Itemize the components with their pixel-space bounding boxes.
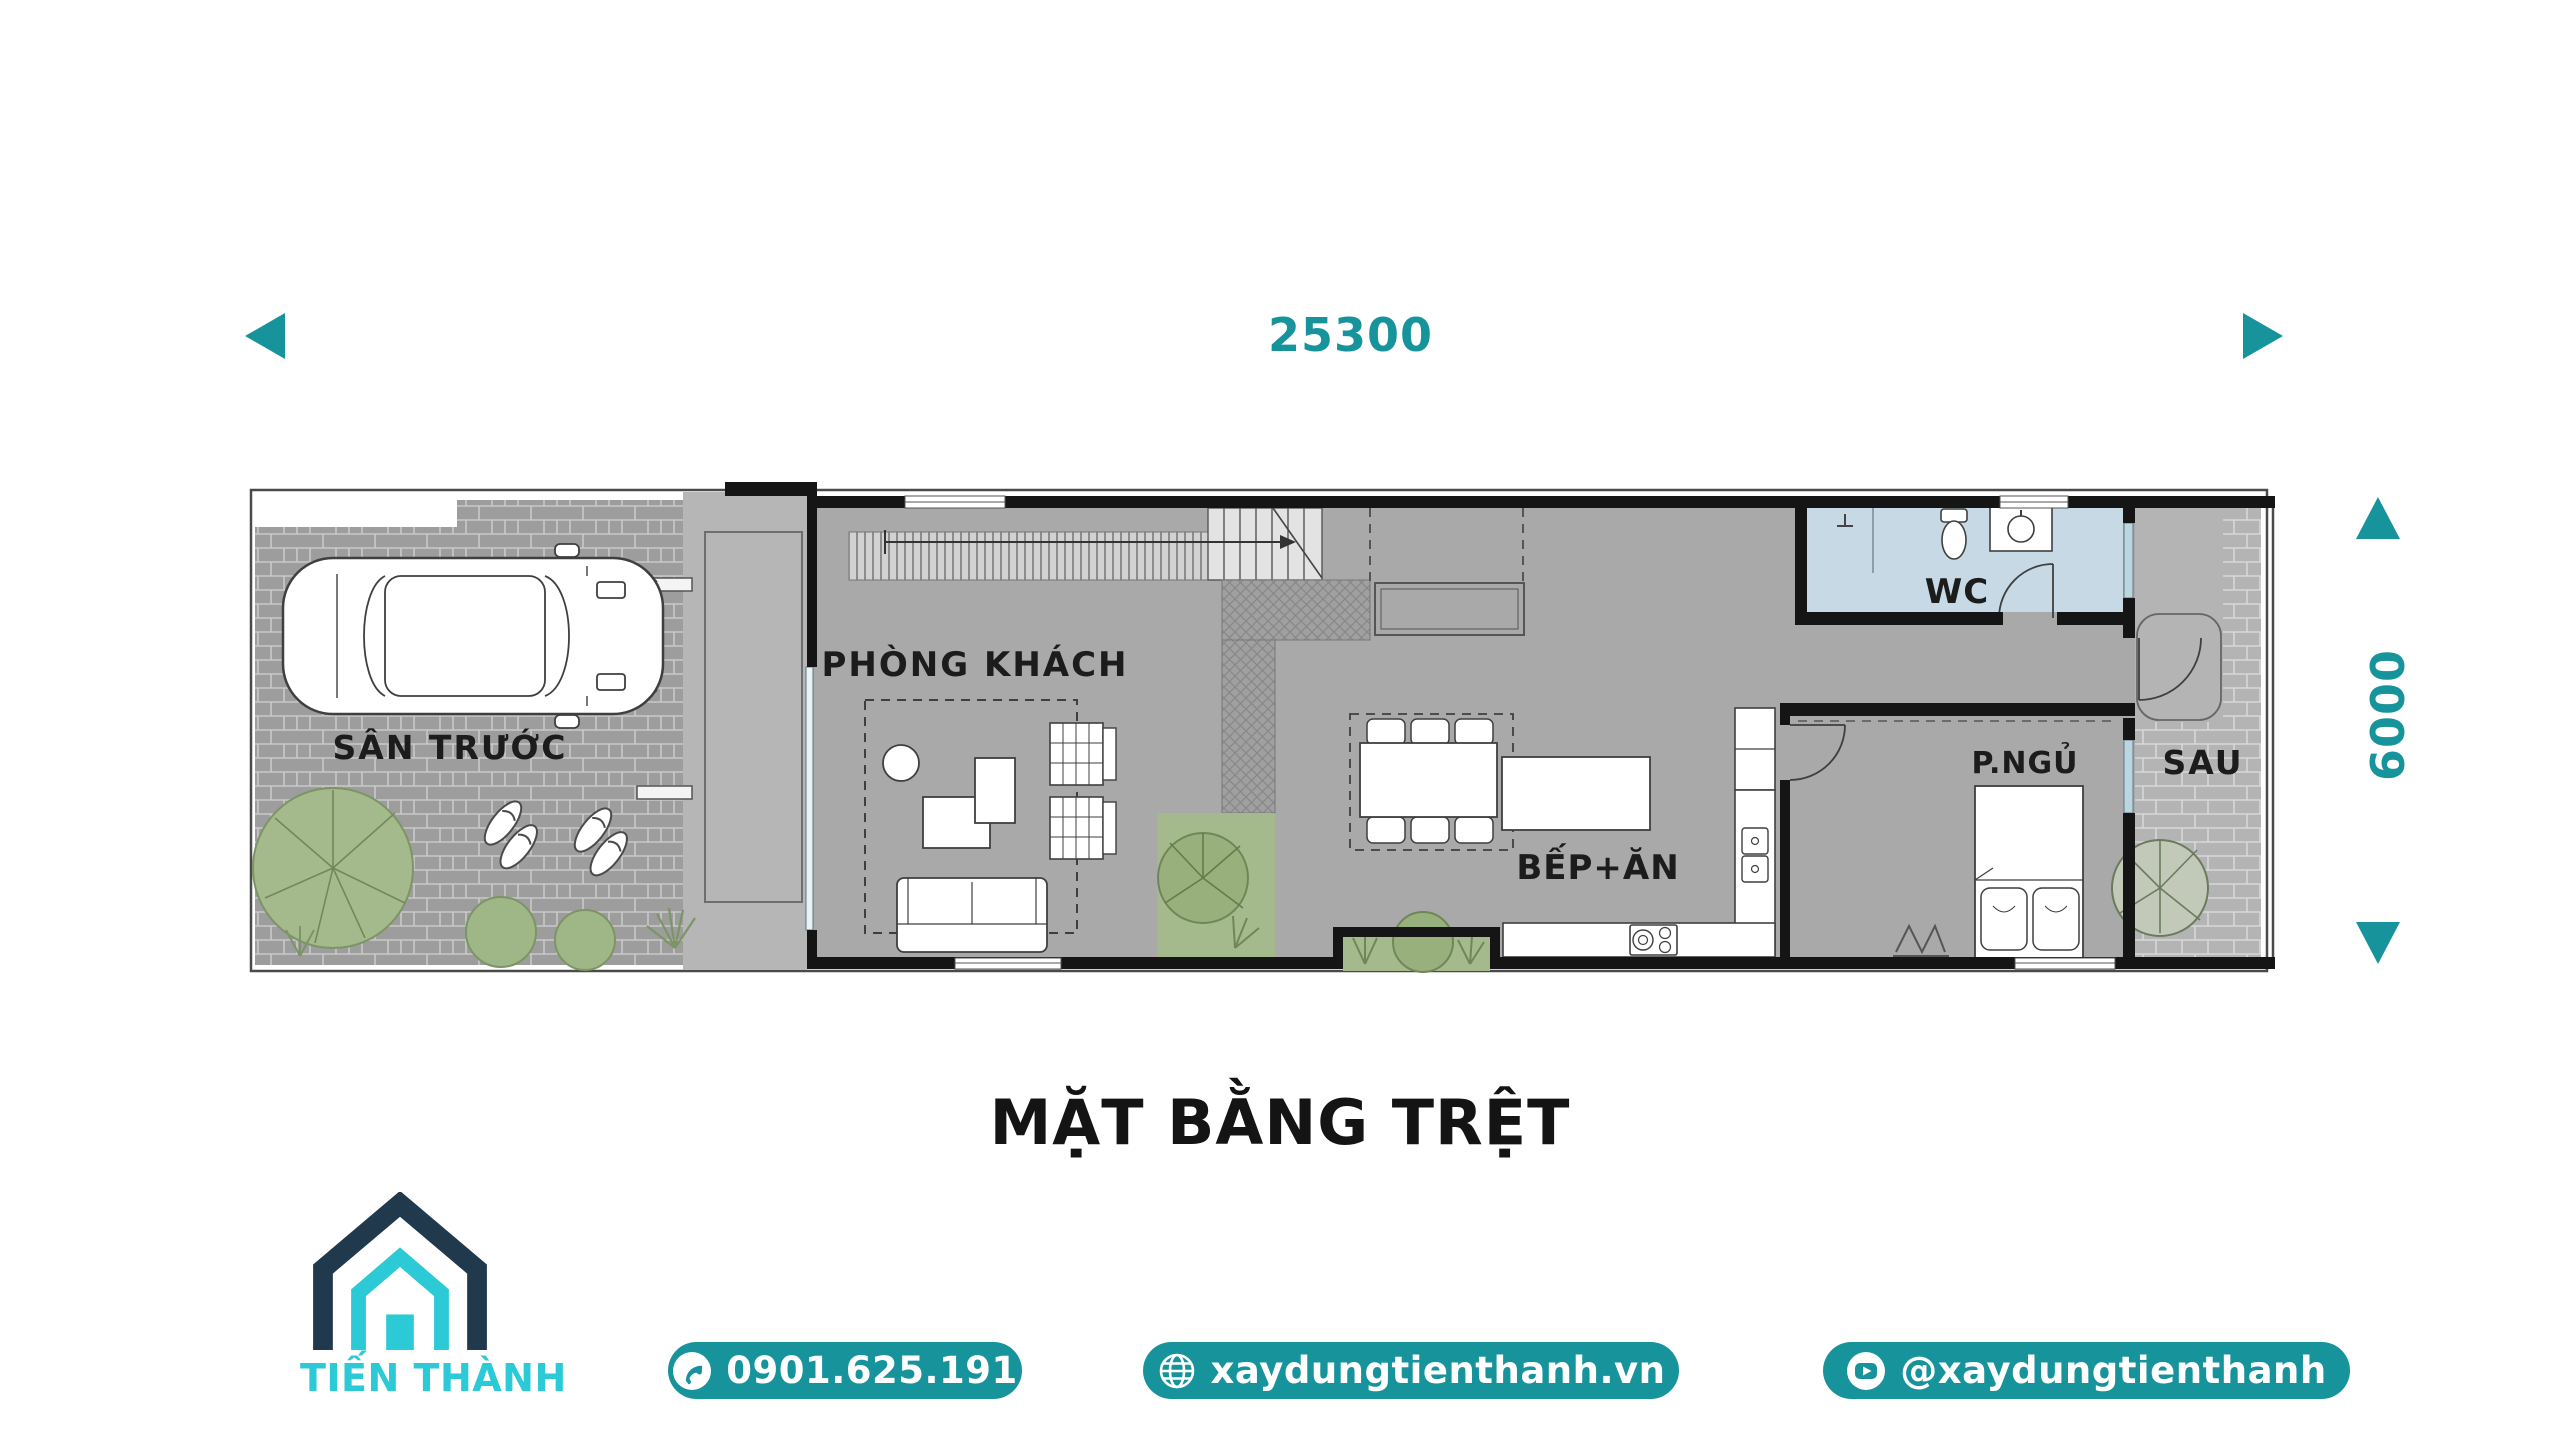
pillow — [1981, 888, 2027, 950]
bed — [1975, 786, 2083, 958]
courtyard-garden — [1157, 813, 1275, 960]
phone-number: 0901.625.191 — [726, 1349, 1018, 1392]
house-logo-icon — [300, 1192, 500, 1350]
gate-step — [637, 786, 692, 799]
label-back-yard: SAU — [2162, 743, 2243, 782]
social-button[interactable]: @xaydungtienthanh — [1823, 1342, 2350, 1399]
label-bedroom: P.NGỦ — [1972, 741, 2079, 781]
youtube-icon — [1846, 1351, 1886, 1391]
car-illustration — [283, 544, 663, 728]
globe-icon — [1157, 1351, 1197, 1391]
label-living-room: PHÒNG KHÁCH — [822, 644, 1129, 685]
label-kitchen-dining: BẾP+ĂN — [1516, 843, 1679, 888]
height-dimension: 6000 — [2361, 649, 2415, 781]
width-dimension: 25300 — [1268, 308, 1433, 362]
pillow — [2033, 888, 2079, 950]
driveway — [683, 492, 807, 970]
phone-icon — [672, 1351, 712, 1391]
wc-window — [2124, 523, 2133, 598]
phone-button[interactable]: 0901.625.191 — [668, 1342, 1022, 1399]
triangle-right-icon — [2243, 313, 2283, 359]
triangle-up-icon — [2356, 497, 2400, 539]
sofa — [897, 878, 1047, 952]
toilet — [1941, 509, 1967, 559]
brand-name: TIẾN THÀNH — [300, 1356, 500, 1400]
armchair — [1050, 723, 1116, 785]
triangle-down-icon — [2356, 922, 2400, 964]
page-title: MẶT BẰNG TRỆT — [0, 1086, 2560, 1159]
kitchen-island — [1502, 757, 1650, 830]
triangle-left-icon — [245, 313, 285, 359]
round-table — [883, 745, 919, 781]
entrance-glass-door — [806, 667, 813, 930]
label-front-yard: SÂN TRƯỚC — [333, 727, 568, 767]
side-table — [975, 758, 1015, 823]
dining-table — [1360, 743, 1497, 817]
bedroom-window — [2124, 740, 2133, 813]
floor-plan-svg: SÂN TRƯỚC PHÒNG KHÁCH BẾP+ĂN WC P.NGỦ SA… — [245, 478, 2310, 978]
social-handle: @xaydungtienthanh — [1900, 1349, 2326, 1392]
website-button[interactable]: xaydungtienthanh.vn — [1143, 1342, 1679, 1399]
washbasin — [1990, 507, 2052, 551]
stove — [1630, 925, 1677, 955]
website-url: xaydungtienthanh.vn — [1211, 1349, 1666, 1392]
brand-logo: TIẾN THÀNH — [300, 1192, 500, 1400]
label-wc: WC — [1925, 572, 1989, 612]
floor-plan-page: 25300 6000 — [0, 0, 2560, 1439]
armchair — [1050, 797, 1116, 859]
floor-plan-drawing: SÂN TRƯỚC PHÒNG KHÁCH BẾP+ĂN WC P.NGỦ SA… — [245, 478, 2310, 978]
